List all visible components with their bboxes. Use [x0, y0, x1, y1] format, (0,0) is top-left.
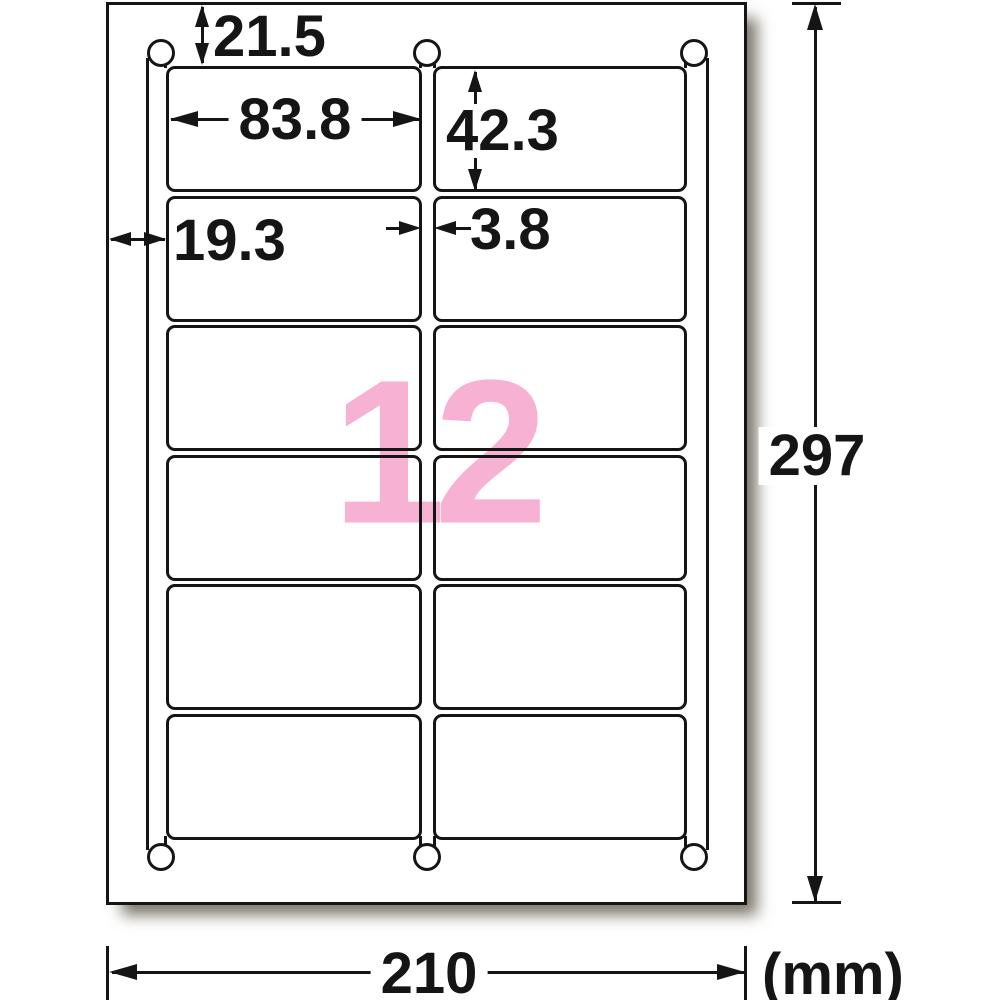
dimension-line: [455, 227, 471, 230]
label-cell: [166, 714, 422, 840]
arrowhead-up-icon: [195, 5, 209, 27]
label-cell: [433, 325, 687, 451]
label-cell: [433, 455, 687, 581]
arrowhead-left-icon: [109, 964, 137, 980]
slit-line-left: [146, 58, 149, 850]
slit-ball-mark: [147, 39, 175, 67]
arrowhead-down-icon: [468, 169, 482, 191]
slit-ball-mark: [413, 39, 441, 67]
label-cell: [433, 584, 687, 710]
slit-ball-mark: [680, 39, 708, 67]
arrowhead-right-icon: [144, 232, 166, 246]
column-gap-value: 3.8: [470, 201, 551, 259]
arrowhead-right-icon: [399, 221, 421, 235]
slit-ball-mark: [680, 843, 708, 871]
dimension-line: [814, 484, 817, 902]
unit-label: (mm): [762, 946, 904, 1000]
label-sheet-diagram: 12 21.5 83.8 42: [0, 0, 1000, 1000]
arrowhead-left-icon: [170, 111, 198, 127]
label-cell: [166, 584, 422, 710]
label-height-value: 42.3: [446, 102, 559, 160]
arrowhead-left-icon: [434, 221, 456, 235]
left-margin-value: 19.3: [173, 212, 286, 270]
slit-ball-mark: [147, 843, 175, 871]
sheet-height-value: 297: [759, 427, 876, 485]
label-cell: [166, 455, 422, 581]
sheet-width-value: 210: [371, 945, 488, 1000]
arrowhead-left-icon: [109, 232, 131, 246]
arrowhead-down-icon: [807, 876, 823, 902]
slit-ball-mark: [413, 843, 441, 871]
arrowhead-down-icon: [195, 43, 209, 65]
slit-line-right: [706, 58, 709, 850]
top-margin-value: 21.5: [213, 8, 326, 66]
arrowhead-up-icon: [807, 4, 823, 30]
dimension-line: [814, 7, 817, 428]
arrowhead-right-icon: [393, 111, 421, 127]
arrowhead-right-icon: [717, 964, 745, 980]
label-cell: [433, 714, 687, 840]
label-cell: [166, 325, 422, 451]
label-width-value: 83.8: [229, 91, 362, 149]
arrowhead-up-icon: [468, 70, 482, 92]
